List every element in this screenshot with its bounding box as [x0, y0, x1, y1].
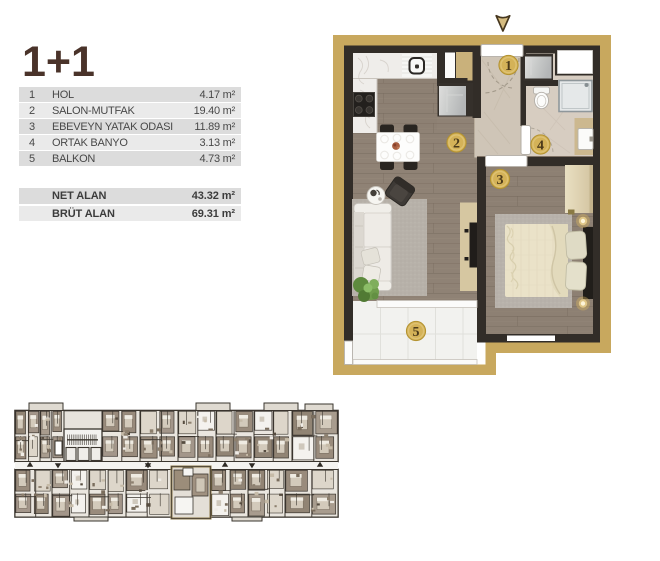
svg-text:4: 4 [537, 138, 544, 153]
svg-text:2: 2 [453, 136, 460, 151]
svg-text:5: 5 [413, 325, 420, 340]
svg-text:1: 1 [505, 59, 512, 74]
svg-text:3: 3 [497, 173, 504, 188]
